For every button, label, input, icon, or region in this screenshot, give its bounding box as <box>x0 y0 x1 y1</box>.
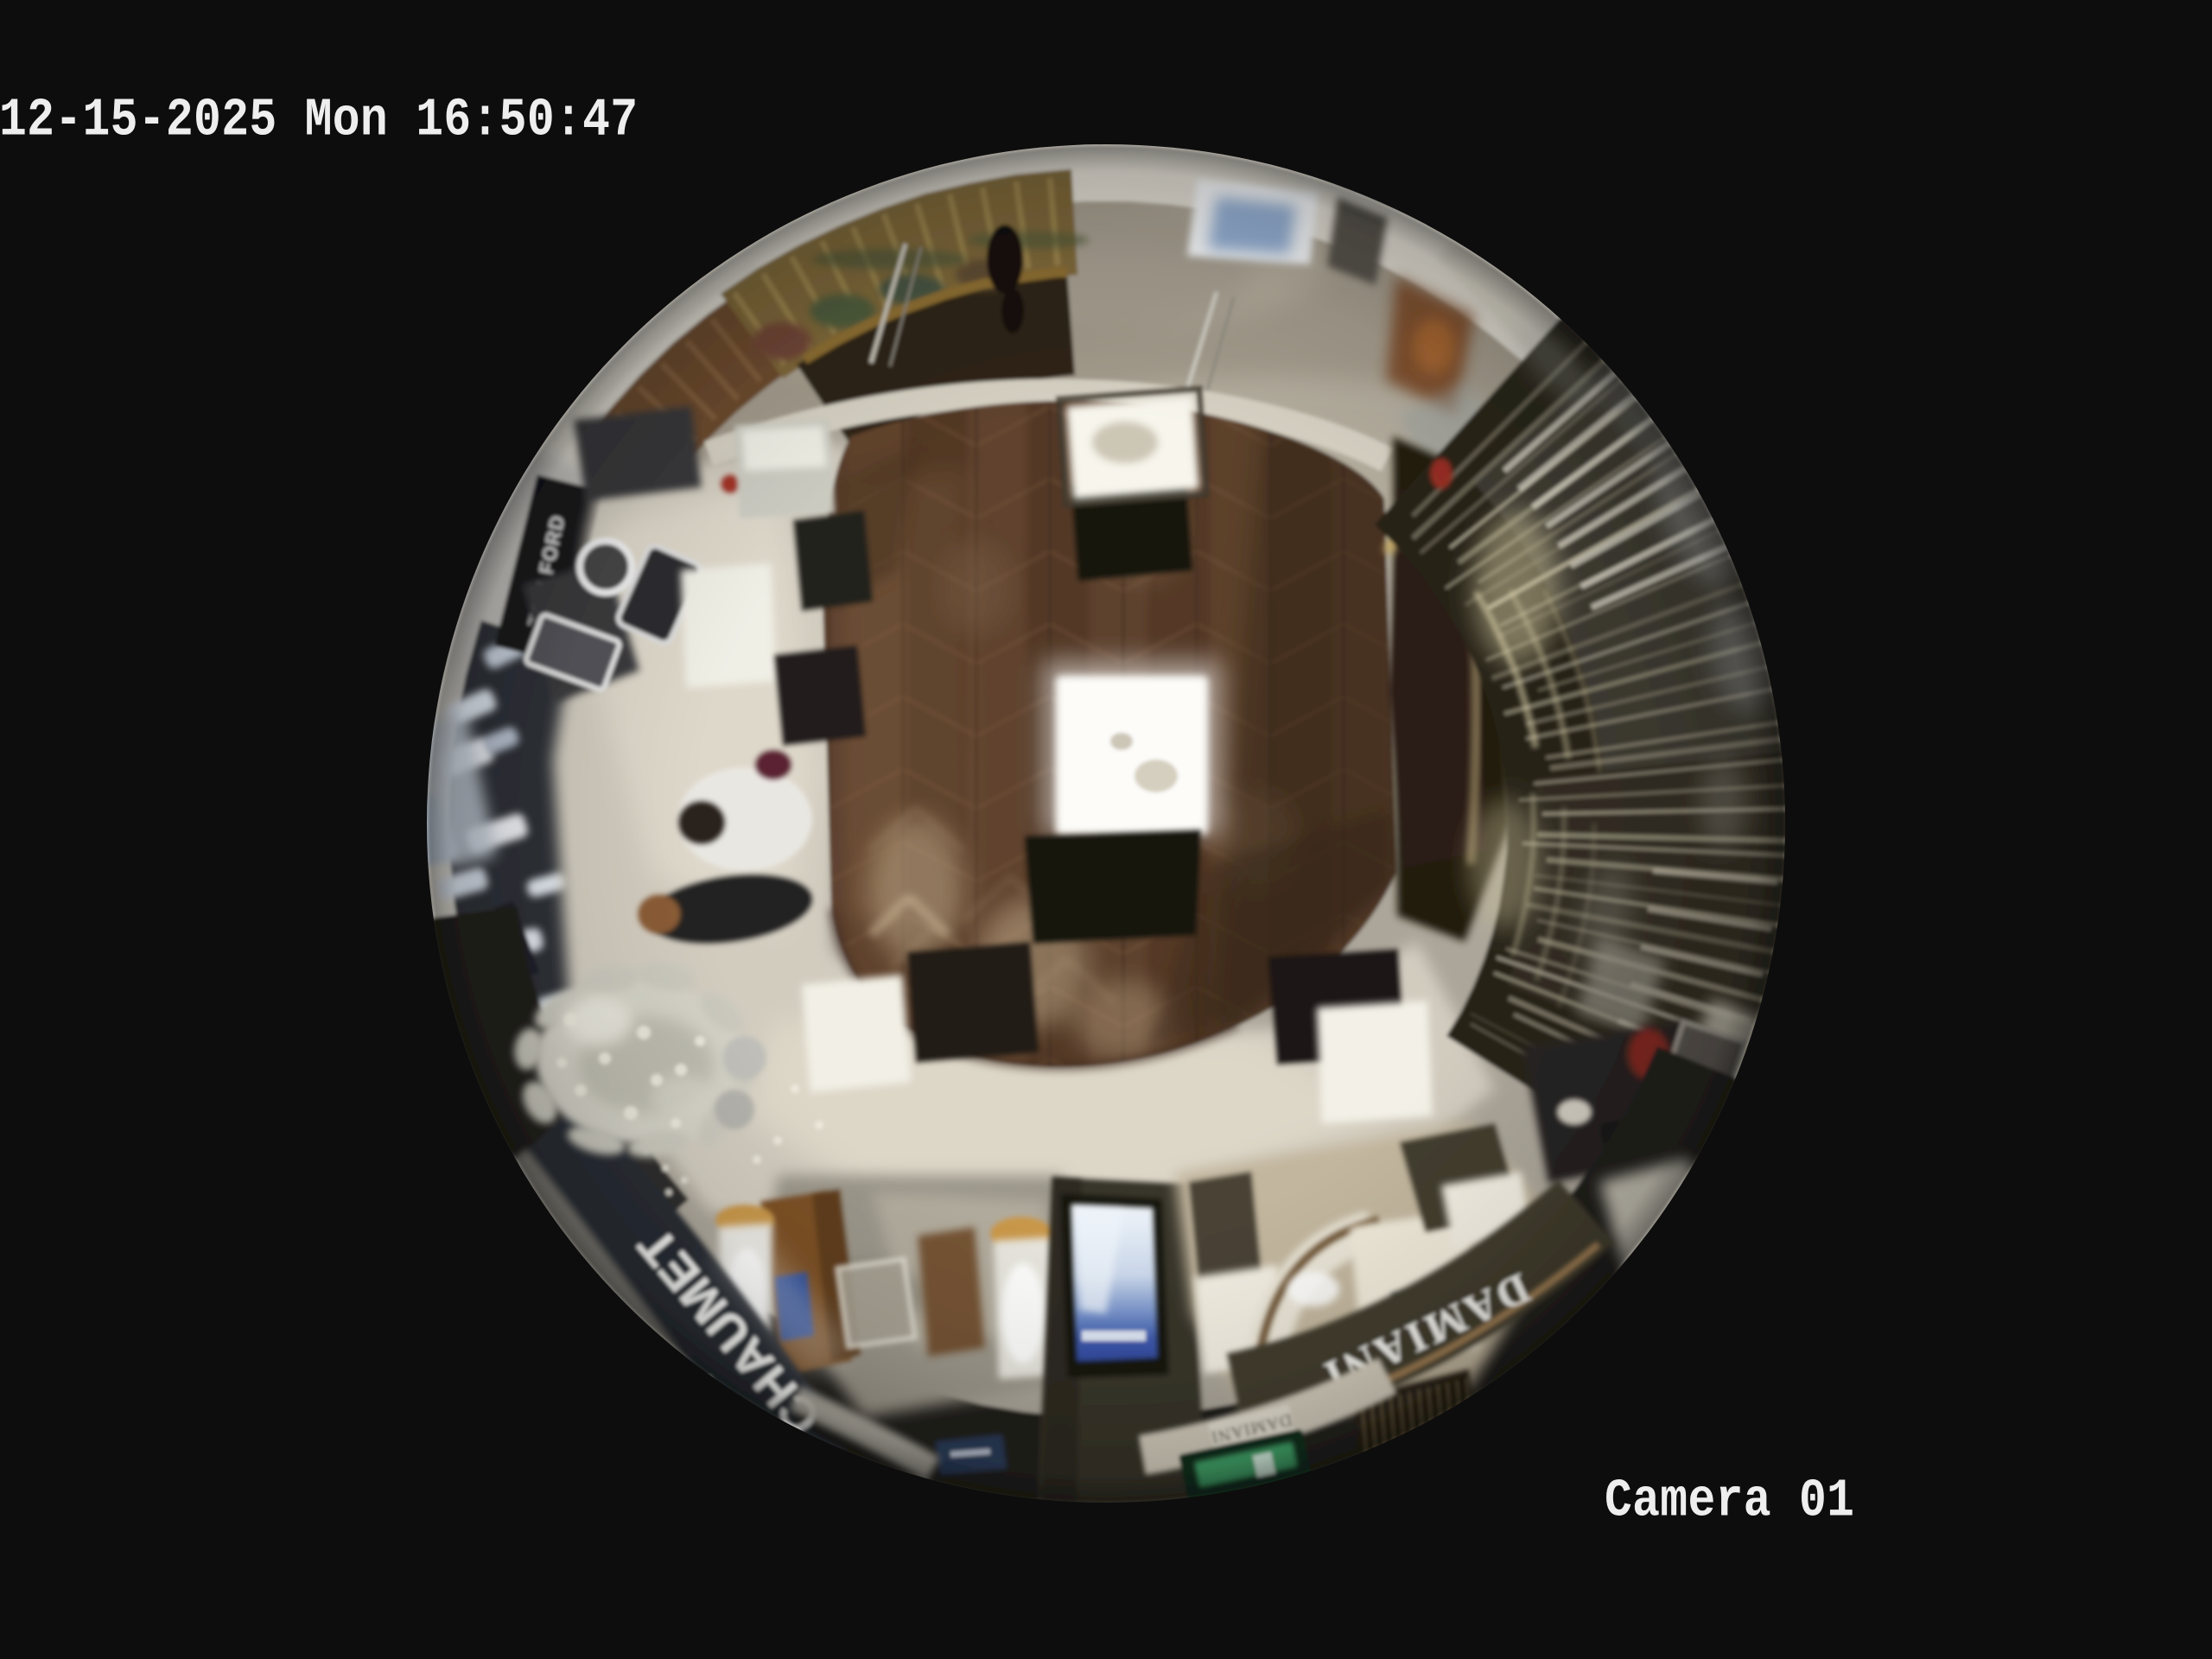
svg-text:12-15-2025 Mon 16:50:47: 12-15-2025 Mon 16:50:47 <box>0 91 638 151</box>
svg-text:Camera 01: Camera 01 <box>1605 1471 1854 1532</box>
